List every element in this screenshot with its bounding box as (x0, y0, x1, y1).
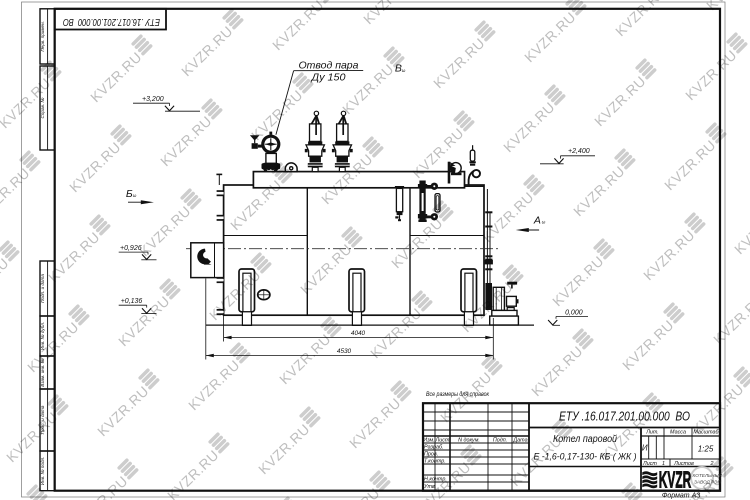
svg-text:Дата: Дата (512, 437, 527, 443)
svg-text:Отвод пара: Отвод пара (299, 60, 359, 71)
svg-text:+2,400: +2,400 (568, 148, 590, 155)
svg-text:Инв. № подл.: Инв. № подл. (40, 457, 45, 486)
svg-text:Лит.: Лит. (645, 430, 659, 436)
svg-text:Изм.: Изм. (423, 437, 435, 443)
svg-text:+0,136: +0,136 (121, 298, 143, 305)
svg-text:ω: ω (542, 220, 546, 225)
svg-text:N докум.: N докум. (458, 437, 480, 443)
svg-text:Лист: Лист (642, 461, 657, 467)
svg-text:Пров.: Пров. (424, 452, 438, 458)
svg-text:ЕТУ .16.017.201.00.000 ВО: ЕТУ .16.017.201.00.000 ВО (63, 16, 160, 27)
svg-text:Лист: Лист (435, 437, 450, 443)
svg-text:ЕТУ .16.017.201.00.000 ВО: ЕТУ .16.017.201.00.000 ВО (559, 408, 690, 423)
svg-text:KVZR: KVZR (659, 467, 692, 493)
svg-text:+3,200: +3,200 (142, 96, 164, 103)
svg-text:Масса: Масса (670, 430, 686, 436)
svg-text:Подп. и дата: Подп. и дата (40, 274, 45, 303)
svg-text:4040: 4040 (351, 330, 366, 337)
svg-text:И: И (642, 444, 648, 453)
svg-text:Подп.: Подп. (493, 437, 507, 443)
svg-text:Разраб.: Разраб. (424, 445, 444, 451)
svg-text:Перв. примен.: Перв. примен. (40, 21, 45, 52)
svg-text:4530: 4530 (337, 348, 352, 355)
svg-text:Ду 150: Ду 150 (310, 73, 345, 84)
svg-text:ω: ω (402, 68, 406, 73)
svg-text:Справ. №: Справ. № (40, 98, 45, 119)
svg-text:ω: ω (133, 193, 137, 198)
svg-text:0,000: 0,000 (565, 309, 583, 316)
svg-text:1:25: 1:25 (698, 445, 714, 454)
svg-text:Т.контр.: Т.контр. (424, 459, 446, 465)
svg-text:А: А (533, 214, 541, 226)
